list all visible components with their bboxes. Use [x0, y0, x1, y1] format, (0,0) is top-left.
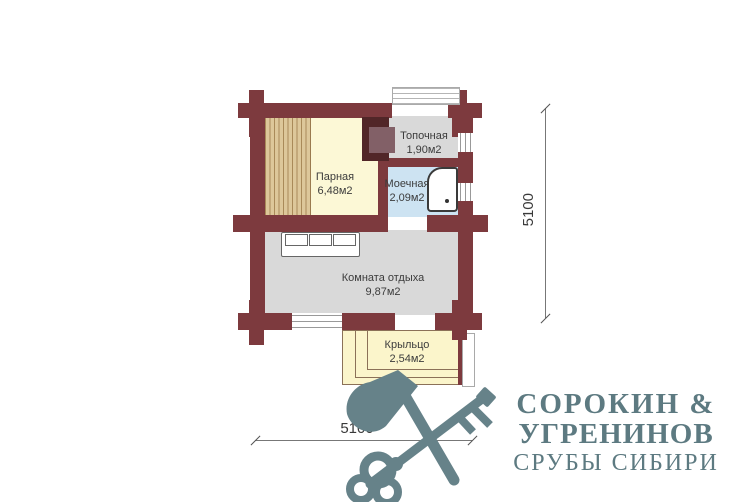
- log-end-middle-right: [471, 215, 488, 232]
- entrance-steps-top: [392, 87, 460, 105]
- room-name: Моечная: [367, 177, 447, 191]
- sofa-cushion: [333, 234, 356, 246]
- log-end-bottom-left: [249, 300, 264, 345]
- room-label-komnata: Комната отдыха 9,87м2: [323, 271, 443, 299]
- floor-plan-canvas: Парная 6,48м2 Топочная 1,90м2 Моечная 2,…: [0, 0, 753, 502]
- room-area: 9,87м2: [323, 285, 443, 299]
- sauna-bench: [265, 118, 311, 215]
- wall-topochnaya-moechnaya: [378, 158, 473, 167]
- log-end-bottom-right: [452, 300, 467, 340]
- sofa-cushion: [285, 234, 308, 246]
- window-komnata: [292, 313, 342, 330]
- room-area: 2,09м2: [367, 191, 447, 205]
- room-name: Крыльцо: [367, 338, 447, 352]
- wall-middle-right: [427, 215, 473, 232]
- room-area: 2,54м2: [367, 352, 447, 366]
- company-logo: СОРОКИН & УГРЕНИНОВ СРУБЫ СИБИРИ: [505, 389, 727, 477]
- room-label-parnaya: Парная 6,48м2: [295, 170, 375, 198]
- room-label-kryltso: Крыльцо 2,54м2: [367, 338, 447, 366]
- room-area: 6,48м2: [295, 184, 375, 198]
- sofa-cushion: [309, 234, 332, 246]
- room-area: 1,90м2: [384, 143, 464, 157]
- axe-key-icon: [340, 368, 505, 502]
- log-end-middle-left: [233, 215, 252, 232]
- room-name: Комната отдыха: [323, 271, 443, 285]
- room-name: Топочная: [384, 129, 464, 143]
- dimension-line-right: [545, 108, 546, 318]
- dimension-value-right: 5100: [520, 193, 537, 226]
- sofa: [281, 232, 360, 257]
- wall-middle-left: [250, 215, 388, 232]
- logo-line-2: УГРЕНИНОВ: [505, 419, 727, 449]
- log-end-top-left: [249, 90, 264, 137]
- window-moechnaya: [458, 183, 473, 201]
- room-label-moechnaya: Моечная 2,09м2: [367, 177, 447, 205]
- wall-bottom-left: [238, 313, 292, 330]
- logo-line-3: СРУБЫ СИБИРИ: [505, 449, 727, 477]
- room-name: Парная: [295, 170, 375, 184]
- wall-bottom-middle: [342, 313, 395, 330]
- room-label-topochnaya: Топочная 1,90м2: [384, 129, 464, 157]
- logo-line-1: СОРОКИН &: [505, 389, 727, 419]
